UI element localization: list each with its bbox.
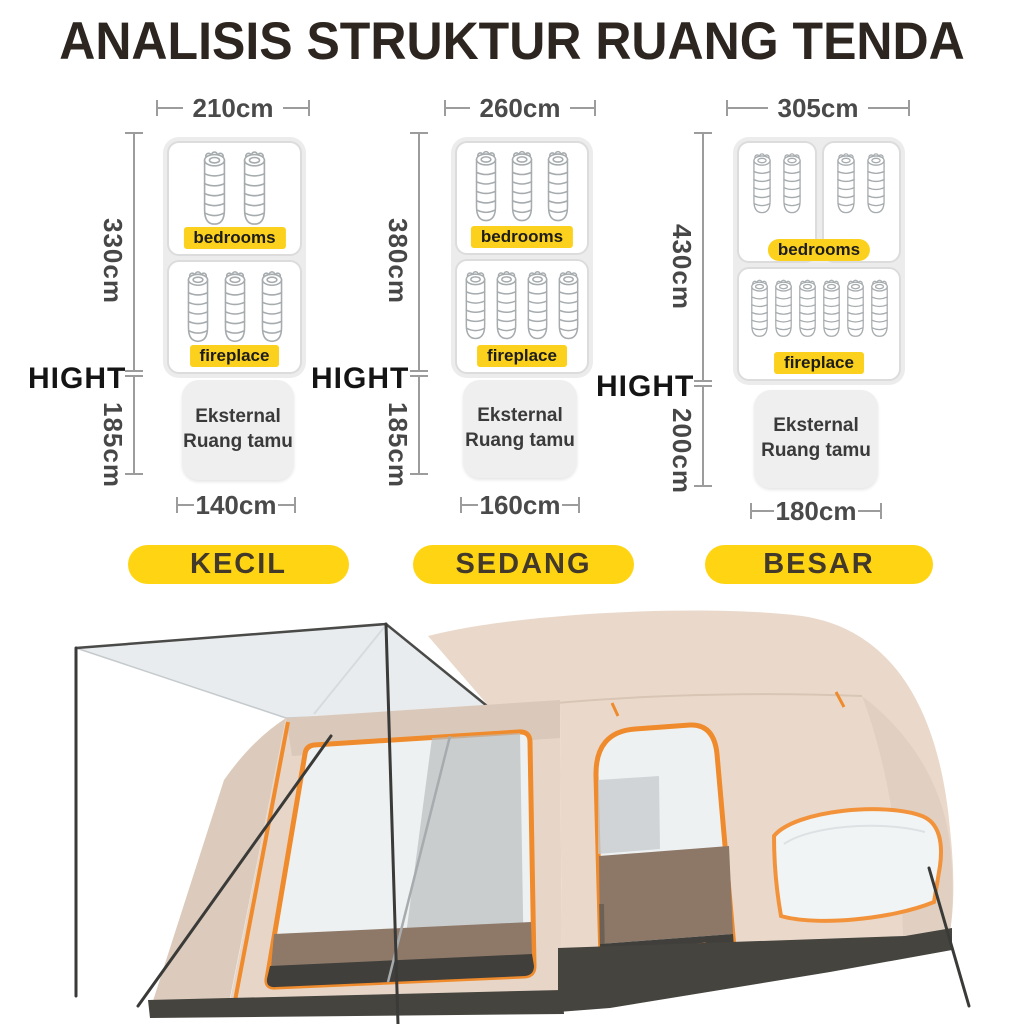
dimension-line	[178, 504, 194, 506]
bedrooms-label: bedrooms	[183, 227, 285, 249]
sleeping-bag-icon	[545, 150, 571, 224]
external-label-line1: Eksternal	[477, 404, 563, 429]
besar-top-width-value: 305cm	[768, 93, 869, 124]
sleeping-bag-icon	[509, 150, 535, 224]
dimension-line	[570, 107, 594, 109]
kecil-floor-plan: bedrooms fireplace	[163, 137, 306, 378]
bedrooms-label: bedrooms	[471, 226, 573, 248]
sleeping-bag-icon	[773, 276, 794, 342]
sleeping-bag-icon	[797, 276, 818, 342]
dimension-line	[562, 504, 578, 506]
sedang-size-badge: SEDANG	[413, 545, 634, 584]
sleeping-bag-icon	[259, 269, 285, 346]
kecil-height-axis-label: HIGHT	[28, 362, 126, 396]
besar-top-width-dimension: 305cm	[726, 95, 910, 121]
bedrooms-label: bedrooms	[768, 239, 870, 261]
kecil-size-badge: KECIL	[128, 545, 349, 584]
dimension-tick	[578, 497, 580, 513]
kecil-bedroom-section: bedrooms	[167, 141, 302, 256]
besar-bottom-width-dimension: 180cm	[750, 498, 882, 524]
sedang-external-height-value: 185cm	[382, 402, 413, 488]
dimension-cap	[694, 380, 712, 382]
kecil-fireplace-section: fireplace	[167, 260, 302, 374]
sedang-bottom-width-value: 160cm	[478, 490, 563, 521]
fireplace-label: fireplace	[477, 345, 567, 367]
sleeping-bag-icon	[185, 269, 211, 346]
dimension-tick	[880, 503, 882, 519]
dimension-line	[158, 107, 183, 109]
external-label-line2: Ruang tamu	[761, 439, 871, 464]
dimension-tick	[308, 100, 310, 116]
sedang-fireplace-section: fireplace	[455, 259, 589, 375]
external-label-line1: Eksternal	[195, 405, 281, 430]
besar-external-height-value: 200cm	[666, 408, 697, 494]
external-label-line2: Ruang tamu	[465, 429, 575, 454]
dimension-line	[446, 107, 470, 109]
sedang-bedroom-section: bedrooms	[455, 141, 589, 255]
tent-awning	[76, 624, 492, 718]
sleeping-bag-icon	[835, 150, 857, 218]
kecil-bottom-width-value: 140cm	[194, 490, 279, 521]
kecil-external-room: Eksternal Ruang tamu	[182, 380, 294, 480]
sleeping-bag-icon	[556, 268, 581, 344]
dimension-line	[133, 377, 135, 473]
fireplace-label: fireplace	[774, 352, 864, 374]
besar-height-axis-label: HIGHT	[596, 370, 694, 404]
besar-external-room: Eksternal Ruang tamu	[754, 390, 878, 488]
sedang-external-room: Eksternal Ruang tamu	[463, 380, 577, 478]
sleeping-bag-icon	[749, 276, 770, 342]
kecil-top-width-value: 210cm	[183, 93, 284, 124]
dimension-tick	[908, 100, 910, 116]
sleeping-bag-icon	[845, 276, 866, 342]
dimension-line	[868, 107, 908, 109]
sedang-bottom-width-dimension: 160cm	[460, 492, 580, 518]
besar-fireplace-section: fireplace	[737, 267, 901, 381]
sleeping-bag-icon	[201, 150, 228, 228]
living-room-front	[152, 700, 562, 1010]
dimension-line	[702, 387, 704, 485]
sleeping-bag-icon	[222, 269, 248, 346]
dimension-tick	[294, 497, 296, 513]
dimension-line	[278, 504, 294, 506]
dimension-line	[752, 510, 774, 512]
fireplace-label: fireplace	[190, 345, 280, 367]
sleeping-bag-icon	[463, 268, 488, 344]
dimension-line	[133, 134, 135, 370]
dimension-cap	[410, 370, 428, 372]
sleeping-bag-icon	[473, 150, 499, 224]
besar-bedroom-sections: bedrooms	[737, 141, 901, 263]
tent-size-infographic: ANALISIS STRUKTUR RUANG TENDA 210cm 330c…	[0, 0, 1024, 1024]
dimension-line	[728, 107, 768, 109]
sedang-height-axis-label: HIGHT	[311, 362, 409, 396]
dimension-cap	[125, 370, 143, 372]
besar-bottom-width-value: 180cm	[774, 496, 859, 527]
sleeping-bag-icon	[751, 150, 773, 218]
sleeping-bag-icon	[821, 276, 842, 342]
sedang-floor-plan: bedrooms fireplace	[451, 137, 593, 378]
kecil-inner-height-value: 330cm	[97, 218, 128, 304]
tent-photo-illustration	[0, 604, 1024, 1024]
dimension-line	[858, 510, 880, 512]
dimension-tick	[594, 100, 596, 116]
dimension-line	[418, 377, 420, 473]
sleeping-bag-icon	[781, 150, 803, 218]
sleeping-bag-icon	[869, 276, 890, 342]
sedang-top-width-value: 260cm	[470, 93, 571, 124]
besar-size-badge: BESAR	[705, 545, 933, 584]
external-label-line1: Eksternal	[773, 414, 859, 439]
cabin-side-window	[774, 809, 941, 921]
besar-floor-plan: bedrooms fireplace	[733, 137, 905, 385]
dimension-line	[462, 504, 478, 506]
dimension-line	[418, 134, 420, 370]
sleeping-bag-icon	[241, 150, 268, 228]
kecil-bottom-width-dimension: 140cm	[176, 492, 296, 518]
sleeping-bag-icon	[494, 268, 519, 344]
sedang-top-width-dimension: 260cm	[444, 95, 596, 121]
kecil-external-height-value: 185cm	[97, 402, 128, 488]
sleeping-bag-icon	[865, 150, 887, 218]
page-title: ANALISIS STRUKTUR RUANG TENDA	[0, 11, 1024, 72]
dimension-line	[702, 134, 704, 380]
sleeping-bag-icon	[525, 268, 550, 344]
besar-inner-height-value: 430cm	[666, 224, 697, 310]
external-label-line2: Ruang tamu	[183, 430, 293, 455]
dimension-line	[283, 107, 308, 109]
sedang-inner-height-value: 380cm	[382, 218, 413, 304]
kecil-top-width-dimension: 210cm	[156, 95, 310, 121]
